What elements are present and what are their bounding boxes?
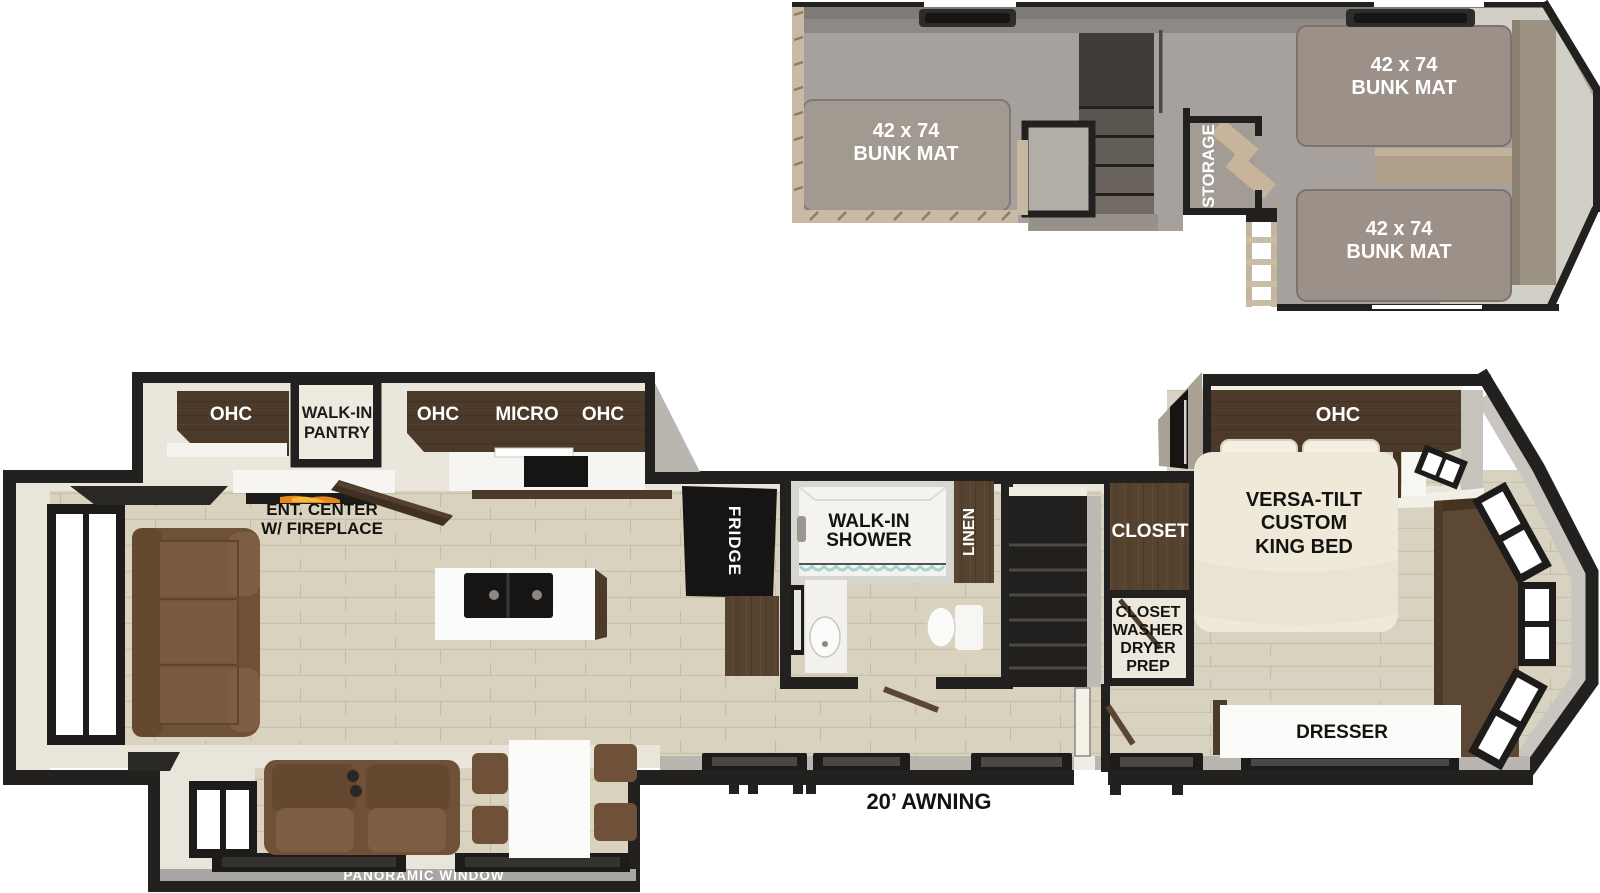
svg-text:BUNK MAT: BUNK MAT (1346, 241, 1451, 263)
svg-text:BUNK MAT: BUNK MAT (853, 143, 958, 165)
svg-text:CUSTOM: CUSTOM (1261, 512, 1347, 534)
svg-text:20’ AWNING: 20’ AWNING (866, 789, 991, 814)
svg-text:DRESSER: DRESSER (1296, 722, 1388, 743)
svg-text:42 x 74: 42 x 74 (873, 120, 941, 142)
svg-text:MICRO: MICRO (495, 404, 558, 425)
svg-text:PANTRY: PANTRY (304, 424, 370, 442)
svg-text:W/ FIREPLACE: W/ FIREPLACE (261, 519, 383, 538)
svg-text:OHC: OHC (1316, 404, 1360, 426)
svg-text:BUNK MAT: BUNK MAT (1351, 77, 1456, 99)
svg-text:CLOSET: CLOSET (1116, 604, 1181, 621)
svg-text:LINEN: LINEN (961, 508, 978, 556)
svg-text:42 x 74: 42 x 74 (1366, 218, 1434, 240)
svg-text:ENT. CENTER: ENT. CENTER (266, 500, 377, 519)
svg-text:CLOSET: CLOSET (1111, 521, 1188, 542)
svg-text:WALK-IN: WALK-IN (828, 511, 909, 532)
svg-text:FRIDGE: FRIDGE (725, 506, 744, 576)
svg-text:OHC: OHC (582, 404, 625, 425)
svg-text:OHC: OHC (417, 404, 460, 425)
svg-text:WASHER: WASHER (1113, 622, 1184, 639)
svg-text:SHOWER: SHOWER (826, 530, 912, 551)
svg-text:OHC: OHC (210, 404, 253, 425)
svg-text:STORAGE: STORAGE (1199, 124, 1218, 208)
svg-text:DRYER: DRYER (1120, 640, 1176, 657)
svg-text:42 x 74: 42 x 74 (1371, 54, 1439, 76)
svg-text:KING BED: KING BED (1255, 536, 1353, 558)
svg-text:VERSA-TILT: VERSA-TILT (1246, 489, 1362, 511)
svg-text:WALK-IN: WALK-IN (302, 404, 373, 422)
svg-text:PREP: PREP (1126, 658, 1170, 675)
